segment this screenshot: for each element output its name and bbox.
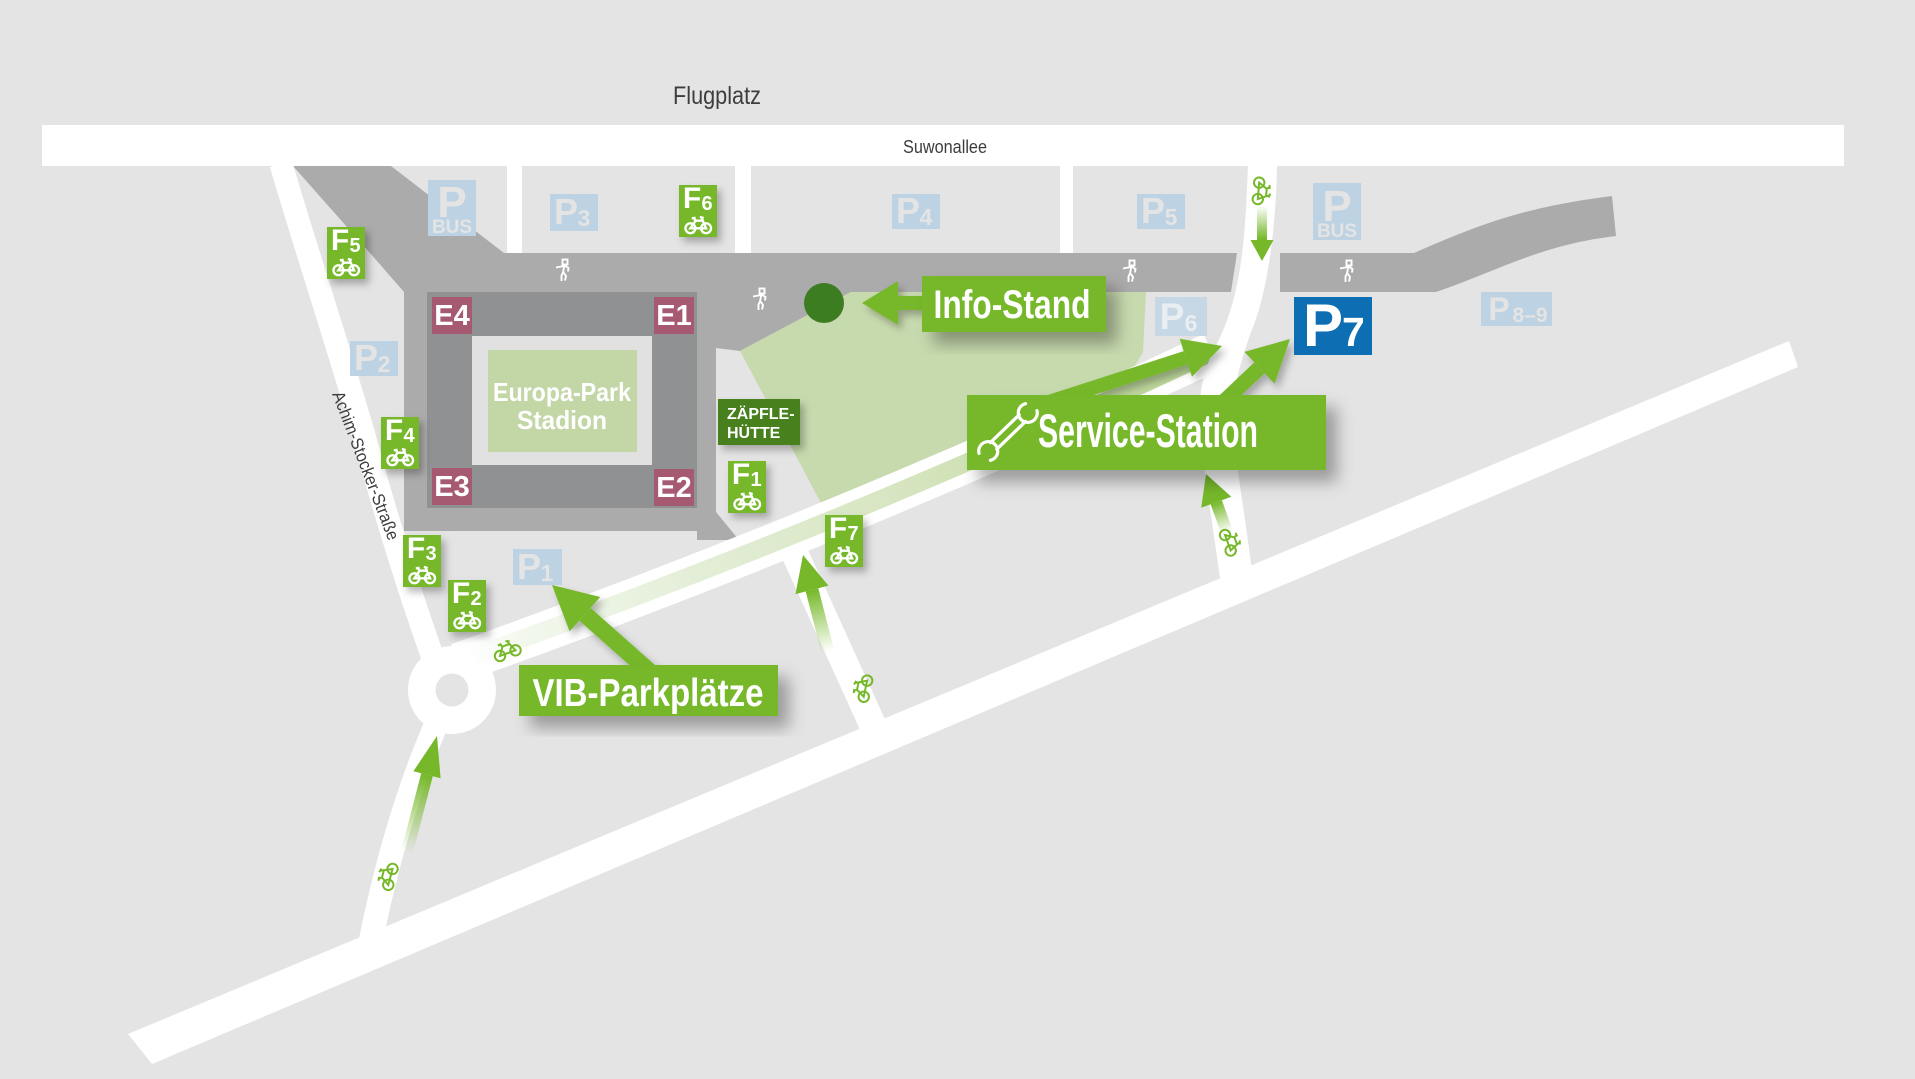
svg-text:P: P [554,191,578,232]
svg-text:F: F [385,414,403,447]
svg-text:3: 3 [425,543,436,565]
svg-text:7: 7 [847,523,858,545]
svg-text:E3: E3 [434,471,469,503]
svg-text:7: 7 [1342,309,1365,355]
svg-text:F: F [683,182,701,215]
svg-text:VIB-Parkplätze: VIB-Parkplätze [533,672,764,715]
svg-text:5: 5 [349,235,360,257]
svg-text:P: P [896,190,920,231]
svg-text:8–9: 8–9 [1512,304,1547,327]
svg-text:P: P [1160,296,1185,337]
svg-text:P: P [517,546,541,587]
svg-text:P: P [1141,190,1165,231]
svg-text:Europa-Park: Europa-Park [493,377,631,407]
svg-text:Flugplatz: Flugplatz [673,82,761,110]
svg-text:E1: E1 [656,300,691,332]
svg-text:Info-Stand: Info-Stand [934,283,1091,327]
svg-text:6: 6 [701,193,712,215]
svg-text:3: 3 [578,205,591,231]
svg-text:5: 5 [1165,204,1178,230]
svg-text:ZÄPFLE-: ZÄPFLE- [727,405,795,423]
svg-text:F: F [331,224,349,257]
svg-text:F: F [829,512,847,545]
svg-text:F: F [732,458,750,491]
svg-text:F: F [452,577,470,610]
svg-text:2: 2 [378,351,391,377]
svg-text:4: 4 [403,425,415,447]
svg-text:F: F [407,532,425,565]
svg-text:4: 4 [920,204,933,230]
svg-text:1: 1 [541,560,554,586]
svg-text:1: 1 [750,469,761,491]
svg-text:2: 2 [470,588,481,610]
svg-text:Suwonallee: Suwonallee [903,137,987,157]
svg-text:6: 6 [1185,310,1198,336]
svg-text:Stadion: Stadion [517,405,607,435]
svg-text:BUS: BUS [1317,221,1357,242]
svg-text:BUS: BUS [432,217,472,238]
svg-text:E2: E2 [656,472,691,504]
svg-text:P: P [1303,292,1343,359]
svg-text:E4: E4 [434,300,469,332]
svg-text:HÜTTE: HÜTTE [727,423,781,442]
svg-text:Service-Station: Service-Station [1038,404,1258,457]
svg-text:P: P [354,337,378,378]
svg-text:P: P [1488,291,1509,327]
